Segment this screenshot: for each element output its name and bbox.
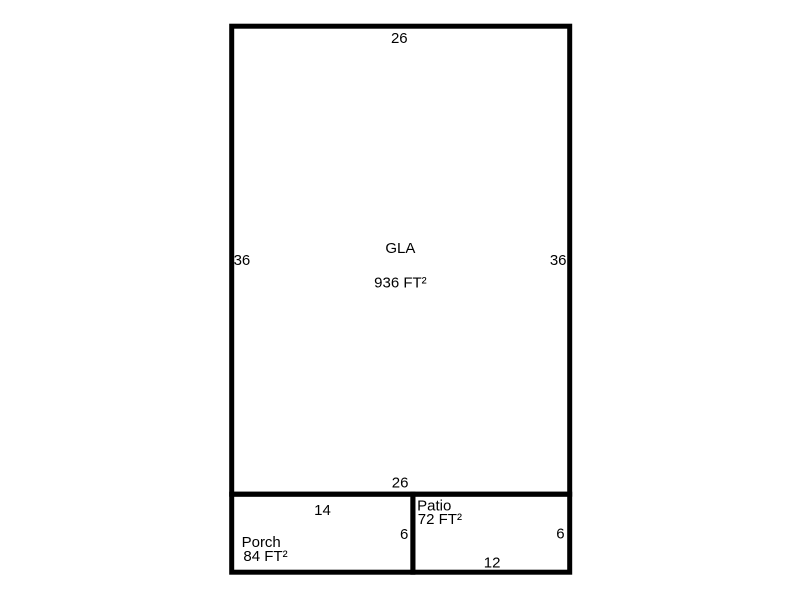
svg-text:GLA: GLA xyxy=(385,240,415,257)
svg-text:12: 12 xyxy=(484,554,501,571)
svg-text:26: 26 xyxy=(391,30,408,47)
svg-text:72 FT²: 72 FT² xyxy=(418,511,462,528)
svg-text:84 FT²: 84 FT² xyxy=(243,548,287,565)
svg-text:26: 26 xyxy=(392,475,409,492)
svg-text:14: 14 xyxy=(314,502,331,519)
svg-text:6: 6 xyxy=(400,526,408,543)
svg-text:936 FT²: 936 FT² xyxy=(374,274,427,291)
svg-text:36: 36 xyxy=(550,252,567,269)
svg-text:6: 6 xyxy=(556,526,564,543)
svg-text:36: 36 xyxy=(234,252,251,269)
